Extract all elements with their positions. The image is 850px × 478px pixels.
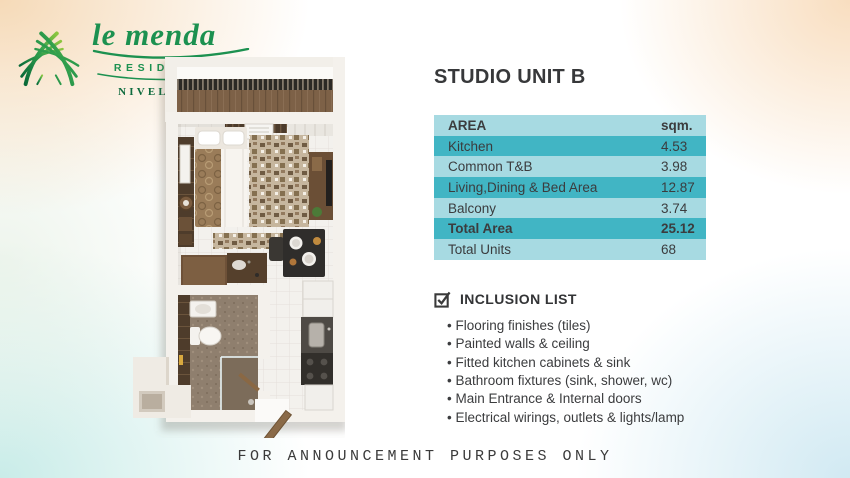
- inclusion-title: INCLUSION LIST: [460, 291, 577, 307]
- table-row: Total Area25.12: [434, 218, 706, 239]
- inclusion-item: Flooring finishes (tiles): [447, 317, 710, 335]
- row-label: Common T&B: [434, 159, 661, 174]
- row-value: 3.98: [661, 159, 706, 174]
- area-table-header: AREA sqm.: [434, 115, 706, 136]
- row-label: Total Units: [434, 242, 661, 257]
- row-label: Kitchen: [434, 139, 661, 154]
- checkbox-check-icon: [434, 291, 451, 308]
- table-row: Common T&B3.98: [434, 156, 706, 177]
- inclusion-item: Main Entrance & Internal doors: [447, 390, 710, 408]
- brand-name: le menda: [92, 20, 216, 50]
- area-table-rows: Kitchen4.53Common T&B3.98Living,Dining &…: [434, 136, 706, 260]
- row-label: Total Area: [434, 221, 661, 236]
- disclaimer-text: FOR ANNOUNCEMENT PURPOSES ONLY: [0, 448, 850, 465]
- inclusion-items: Flooring finishes (tiles)Painted walls &…: [434, 317, 710, 427]
- row-label: Living,Dining & Bed Area: [434, 180, 661, 195]
- table-row: Kitchen4.53: [434, 136, 706, 157]
- row-label: Balcony: [434, 201, 661, 216]
- flyer-page: le menda RESIDENCES NIVEL HILLS: [0, 0, 850, 478]
- row-value: 4.53: [661, 139, 706, 154]
- floor-plan-icon: [133, 57, 345, 438]
- row-value: 25.12: [661, 221, 706, 236]
- inclusion-item: Fitted kitchen cabinets & sink: [447, 354, 710, 372]
- trees-logo-icon: [10, 12, 88, 88]
- table-row: Balcony3.74: [434, 198, 706, 219]
- header-area: AREA: [434, 118, 661, 133]
- inclusion-list: INCLUSION LIST Flooring finishes (tiles)…: [434, 291, 710, 427]
- inclusion-header: INCLUSION LIST: [434, 291, 710, 308]
- area-table: AREA sqm. Kitchen4.53Common T&B3.98Livin…: [434, 115, 706, 260]
- inclusion-item: Bathroom fixtures (sink, shower, wc): [447, 372, 710, 390]
- unit-details-panel: STUDIO UNIT B AREA sqm. Kitchen4.53Commo…: [434, 67, 710, 427]
- row-value: 3.74: [661, 201, 706, 216]
- unit-title: STUDIO UNIT B: [434, 67, 710, 88]
- table-row: Total Units68: [434, 239, 706, 260]
- header-sqm: sqm.: [661, 118, 706, 133]
- row-value: 12.87: [661, 180, 706, 195]
- inclusion-item: Electrical wirings, outlets & lights/lam…: [447, 409, 710, 427]
- inclusion-item: Painted walls & ceiling: [447, 335, 710, 353]
- table-row: Living,Dining & Bed Area12.87: [434, 177, 706, 198]
- floor-plan-illustration: [133, 57, 345, 438]
- row-value: 68: [661, 242, 706, 257]
